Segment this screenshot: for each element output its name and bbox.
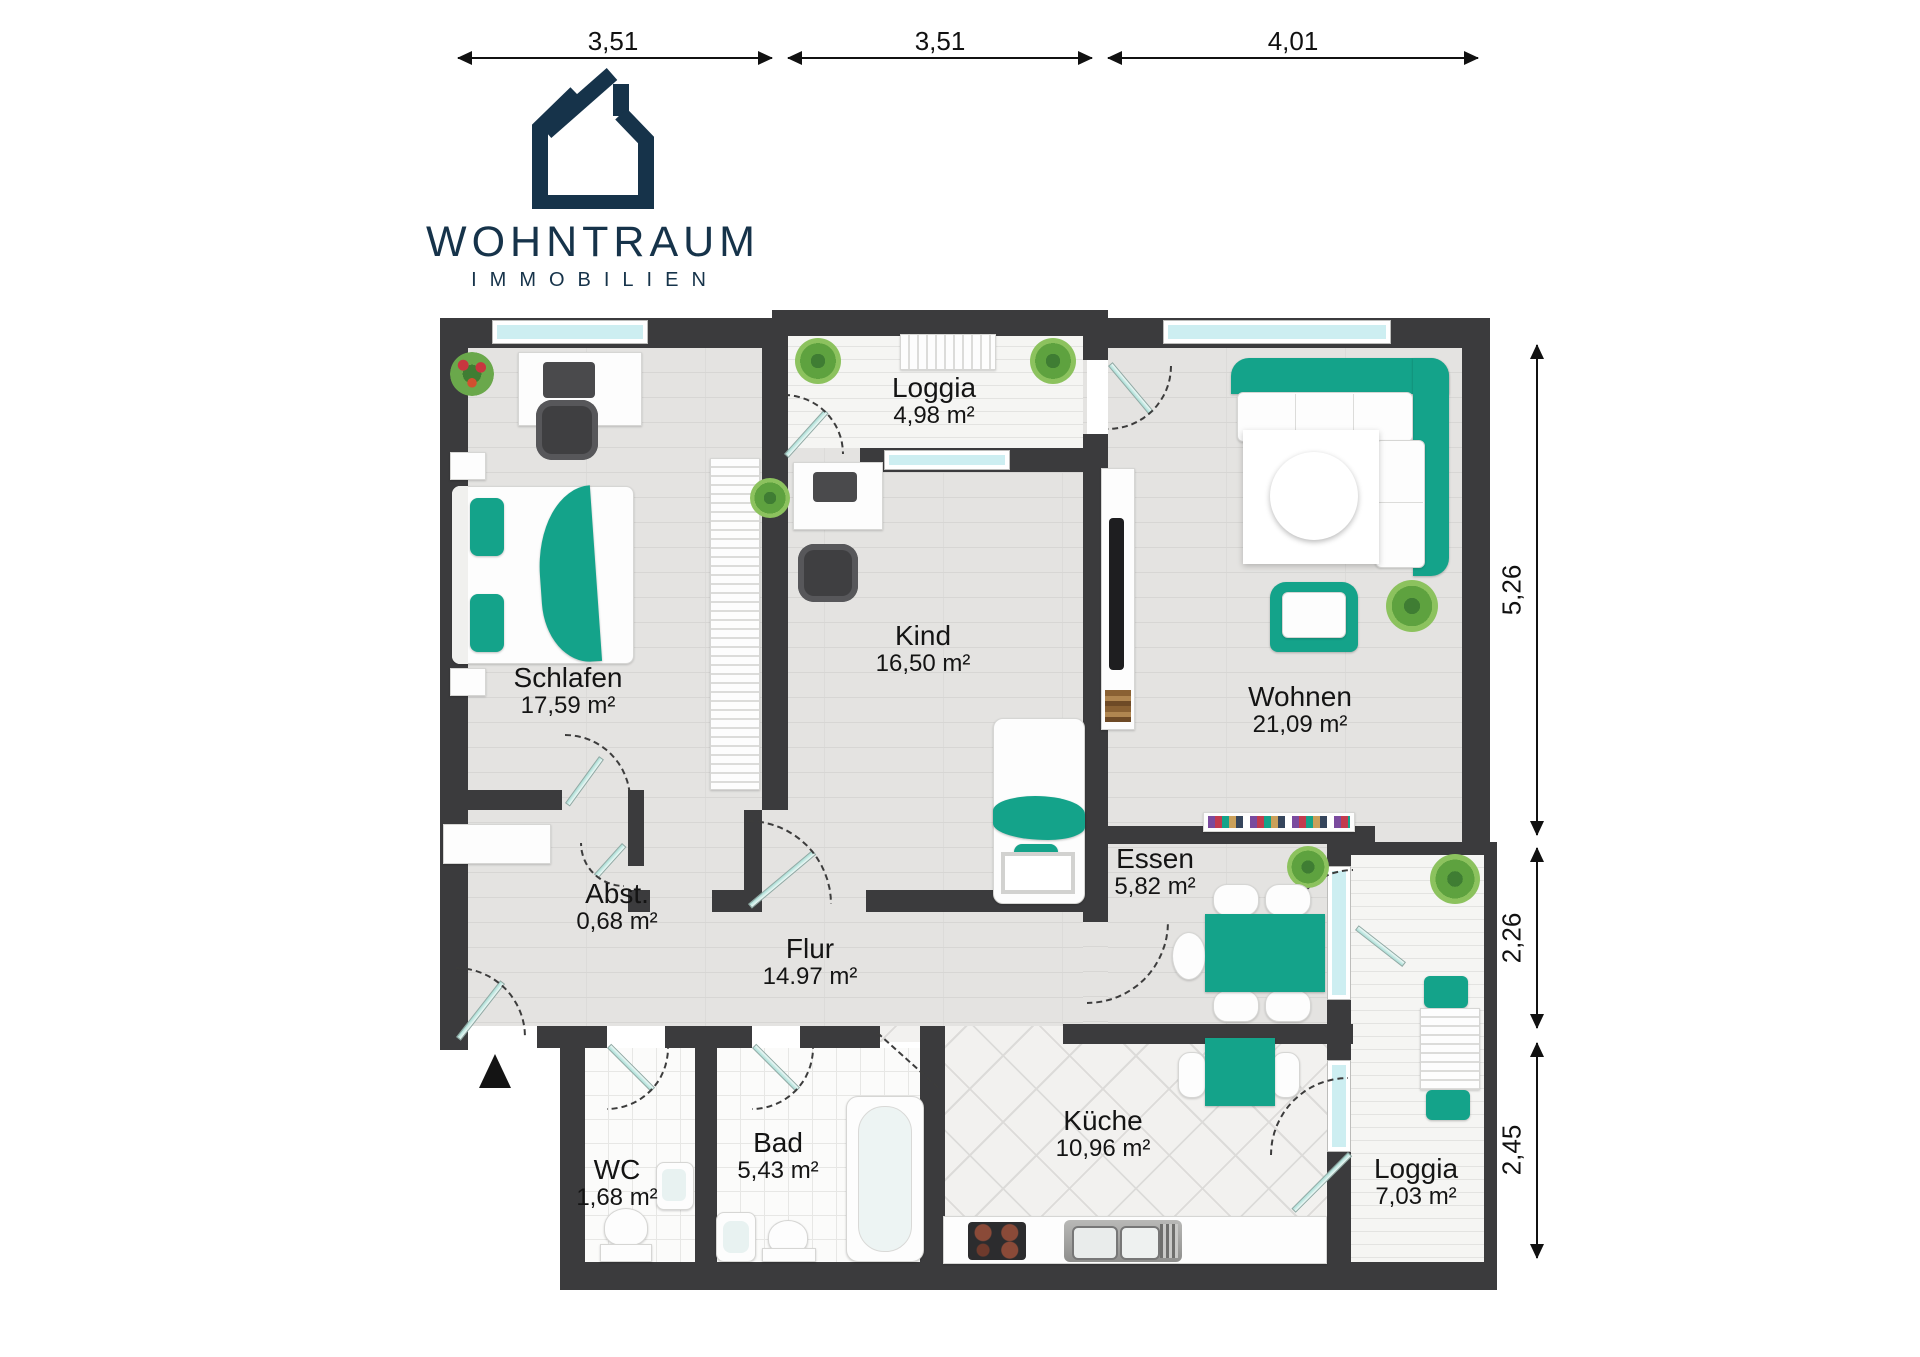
wc-sink — [656, 1162, 694, 1210]
dining-chair — [1213, 990, 1259, 1022]
dining-chair — [1172, 932, 1206, 980]
dimension-line-top-1 — [458, 57, 772, 59]
bookshelf-wohnen — [1203, 812, 1355, 832]
stove-hob-icon — [968, 1222, 1026, 1260]
plant-icon — [1386, 580, 1438, 632]
dining-chair — [1265, 884, 1311, 916]
sideboard-flur — [443, 824, 551, 864]
plant-icon — [1430, 854, 1480, 904]
wall-abst-left — [628, 790, 644, 866]
wall-kind-wohnen-upper — [1083, 334, 1108, 360]
door-arc-kind — [748, 820, 832, 904]
dimension-label-top-1: 3,51 — [588, 26, 639, 57]
wohntraum-house-logo-icon — [520, 64, 666, 210]
room-label-abstellraum: Abst.0,68 m² — [576, 878, 657, 936]
dimension-label-top-3: 4,01 — [1268, 26, 1319, 57]
wc-toilet-tank — [600, 1244, 652, 1262]
pillow-icon — [470, 594, 504, 652]
dimension-line-top-2 — [788, 57, 1092, 59]
room-label-essen: Essen5,82 m² — [1114, 843, 1195, 901]
wall-loggia-right-top — [1351, 842, 1497, 855]
bench-loggia-top — [900, 334, 996, 370]
dimension-line-right-3 — [1536, 1043, 1538, 1258]
entrance-arrow-icon — [479, 1054, 511, 1088]
wall-flur-bottom-d — [800, 1026, 880, 1048]
wall-top-loggia — [772, 310, 1108, 336]
dimension-label-right-3: 2,45 — [1497, 1125, 1528, 1176]
loggia-table — [1420, 1008, 1480, 1090]
window-wohnen — [1163, 320, 1391, 344]
plant-icon — [450, 352, 494, 396]
laptop-icon — [543, 362, 595, 398]
nightstand-bottom — [450, 668, 486, 696]
door-arc-kind-loggia — [784, 394, 844, 454]
dimension-line-right-2 — [1536, 848, 1538, 1028]
plant-icon — [1030, 338, 1076, 384]
dimension-label-top-2: 3,51 — [915, 26, 966, 57]
wall-flur-bottom-a — [440, 1026, 457, 1048]
bathtub — [846, 1096, 924, 1262]
laptop-icon — [813, 472, 857, 502]
wall-flur-top-b — [712, 890, 746, 912]
wall-loggia-right-outer — [1484, 842, 1497, 1290]
books-icon — [1105, 690, 1131, 722]
window-schlafen — [492, 320, 648, 344]
wall-flur-bottom-c — [665, 1026, 752, 1048]
tv-icon — [1109, 518, 1124, 670]
floorplan-page: WOHNTRAUM IMMOBILIEN 3,51 3,51 4,01 5,26… — [0, 0, 1920, 1357]
wc-toilet — [604, 1208, 648, 1246]
room-label-wc: WC1,68 m² — [576, 1154, 657, 1212]
dining-chair — [1265, 990, 1311, 1022]
door-arc-schlafen — [565, 734, 631, 800]
bad-toilet-tank — [762, 1248, 816, 1262]
plant-icon — [795, 338, 841, 384]
door-arc-wohnen-loggia — [1108, 366, 1172, 430]
room-label-schlafen: Schlafen17,59 m² — [514, 662, 623, 720]
room-label-bad: Bad5,43 m² — [737, 1127, 818, 1185]
logo-subtitle: IMMOBILIEN — [471, 269, 719, 292]
wall-schlafen-kind — [762, 318, 788, 810]
room-label-loggia-right: Loggia7,03 m² — [1374, 1153, 1458, 1211]
door-arc-wc — [607, 1048, 669, 1110]
plant-icon — [750, 478, 790, 518]
dimension-label-right-2: 2,26 — [1497, 913, 1528, 964]
kitchen-table — [1205, 1038, 1275, 1106]
dining-table-essen — [1205, 914, 1325, 992]
passage-arc-flur-essen — [1087, 922, 1169, 1004]
kitchen-sink — [1064, 1220, 1182, 1262]
bed-kind-blanket — [993, 796, 1085, 840]
nightstand-top — [450, 452, 486, 480]
wall-outer-right — [1462, 318, 1490, 848]
pillow-icon — [470, 498, 504, 556]
kitchen-chair — [1272, 1052, 1300, 1098]
wall-schlafen-bottom — [440, 790, 562, 810]
logo-title: WOHNTRAUM — [426, 218, 760, 267]
bed-headboard — [452, 486, 468, 664]
bed-kind-footboard — [1001, 852, 1075, 894]
room-label-loggia-top: Loggia4,98 m² — [892, 372, 976, 430]
office-chair-kind — [798, 544, 858, 602]
room-label-wohnen: Wohnen21,09 m² — [1248, 681, 1352, 739]
window-kind-loggia — [884, 450, 1010, 470]
kitchen-chair — [1178, 1052, 1206, 1098]
dimension-line-right-1 — [1536, 345, 1538, 835]
office-chair-schlafen — [536, 400, 598, 460]
plant-icon — [1287, 846, 1329, 888]
bad-sink — [716, 1212, 756, 1262]
dining-chair — [1213, 884, 1259, 916]
wall-outer-bottom — [560, 1262, 1497, 1290]
room-label-flur: Flur14.97 m² — [763, 933, 858, 991]
loggia-bench — [1426, 1090, 1470, 1120]
door-arc-entrance — [456, 967, 526, 1037]
room-label-kueche: Küche10,96 m² — [1056, 1105, 1151, 1163]
coffee-table — [1270, 452, 1358, 540]
dimension-label-right-1: 5,26 — [1497, 565, 1528, 616]
door-arc-bad — [752, 1048, 814, 1110]
room-label-kind: Kind16,50 m² — [876, 620, 971, 678]
wall-loggia-bottom-a — [772, 448, 784, 472]
armchair-cushion — [1282, 592, 1346, 638]
loggia-bench — [1424, 976, 1468, 1008]
dimension-line-top-3 — [1108, 57, 1478, 59]
wall-wc-bad — [695, 1048, 717, 1264]
